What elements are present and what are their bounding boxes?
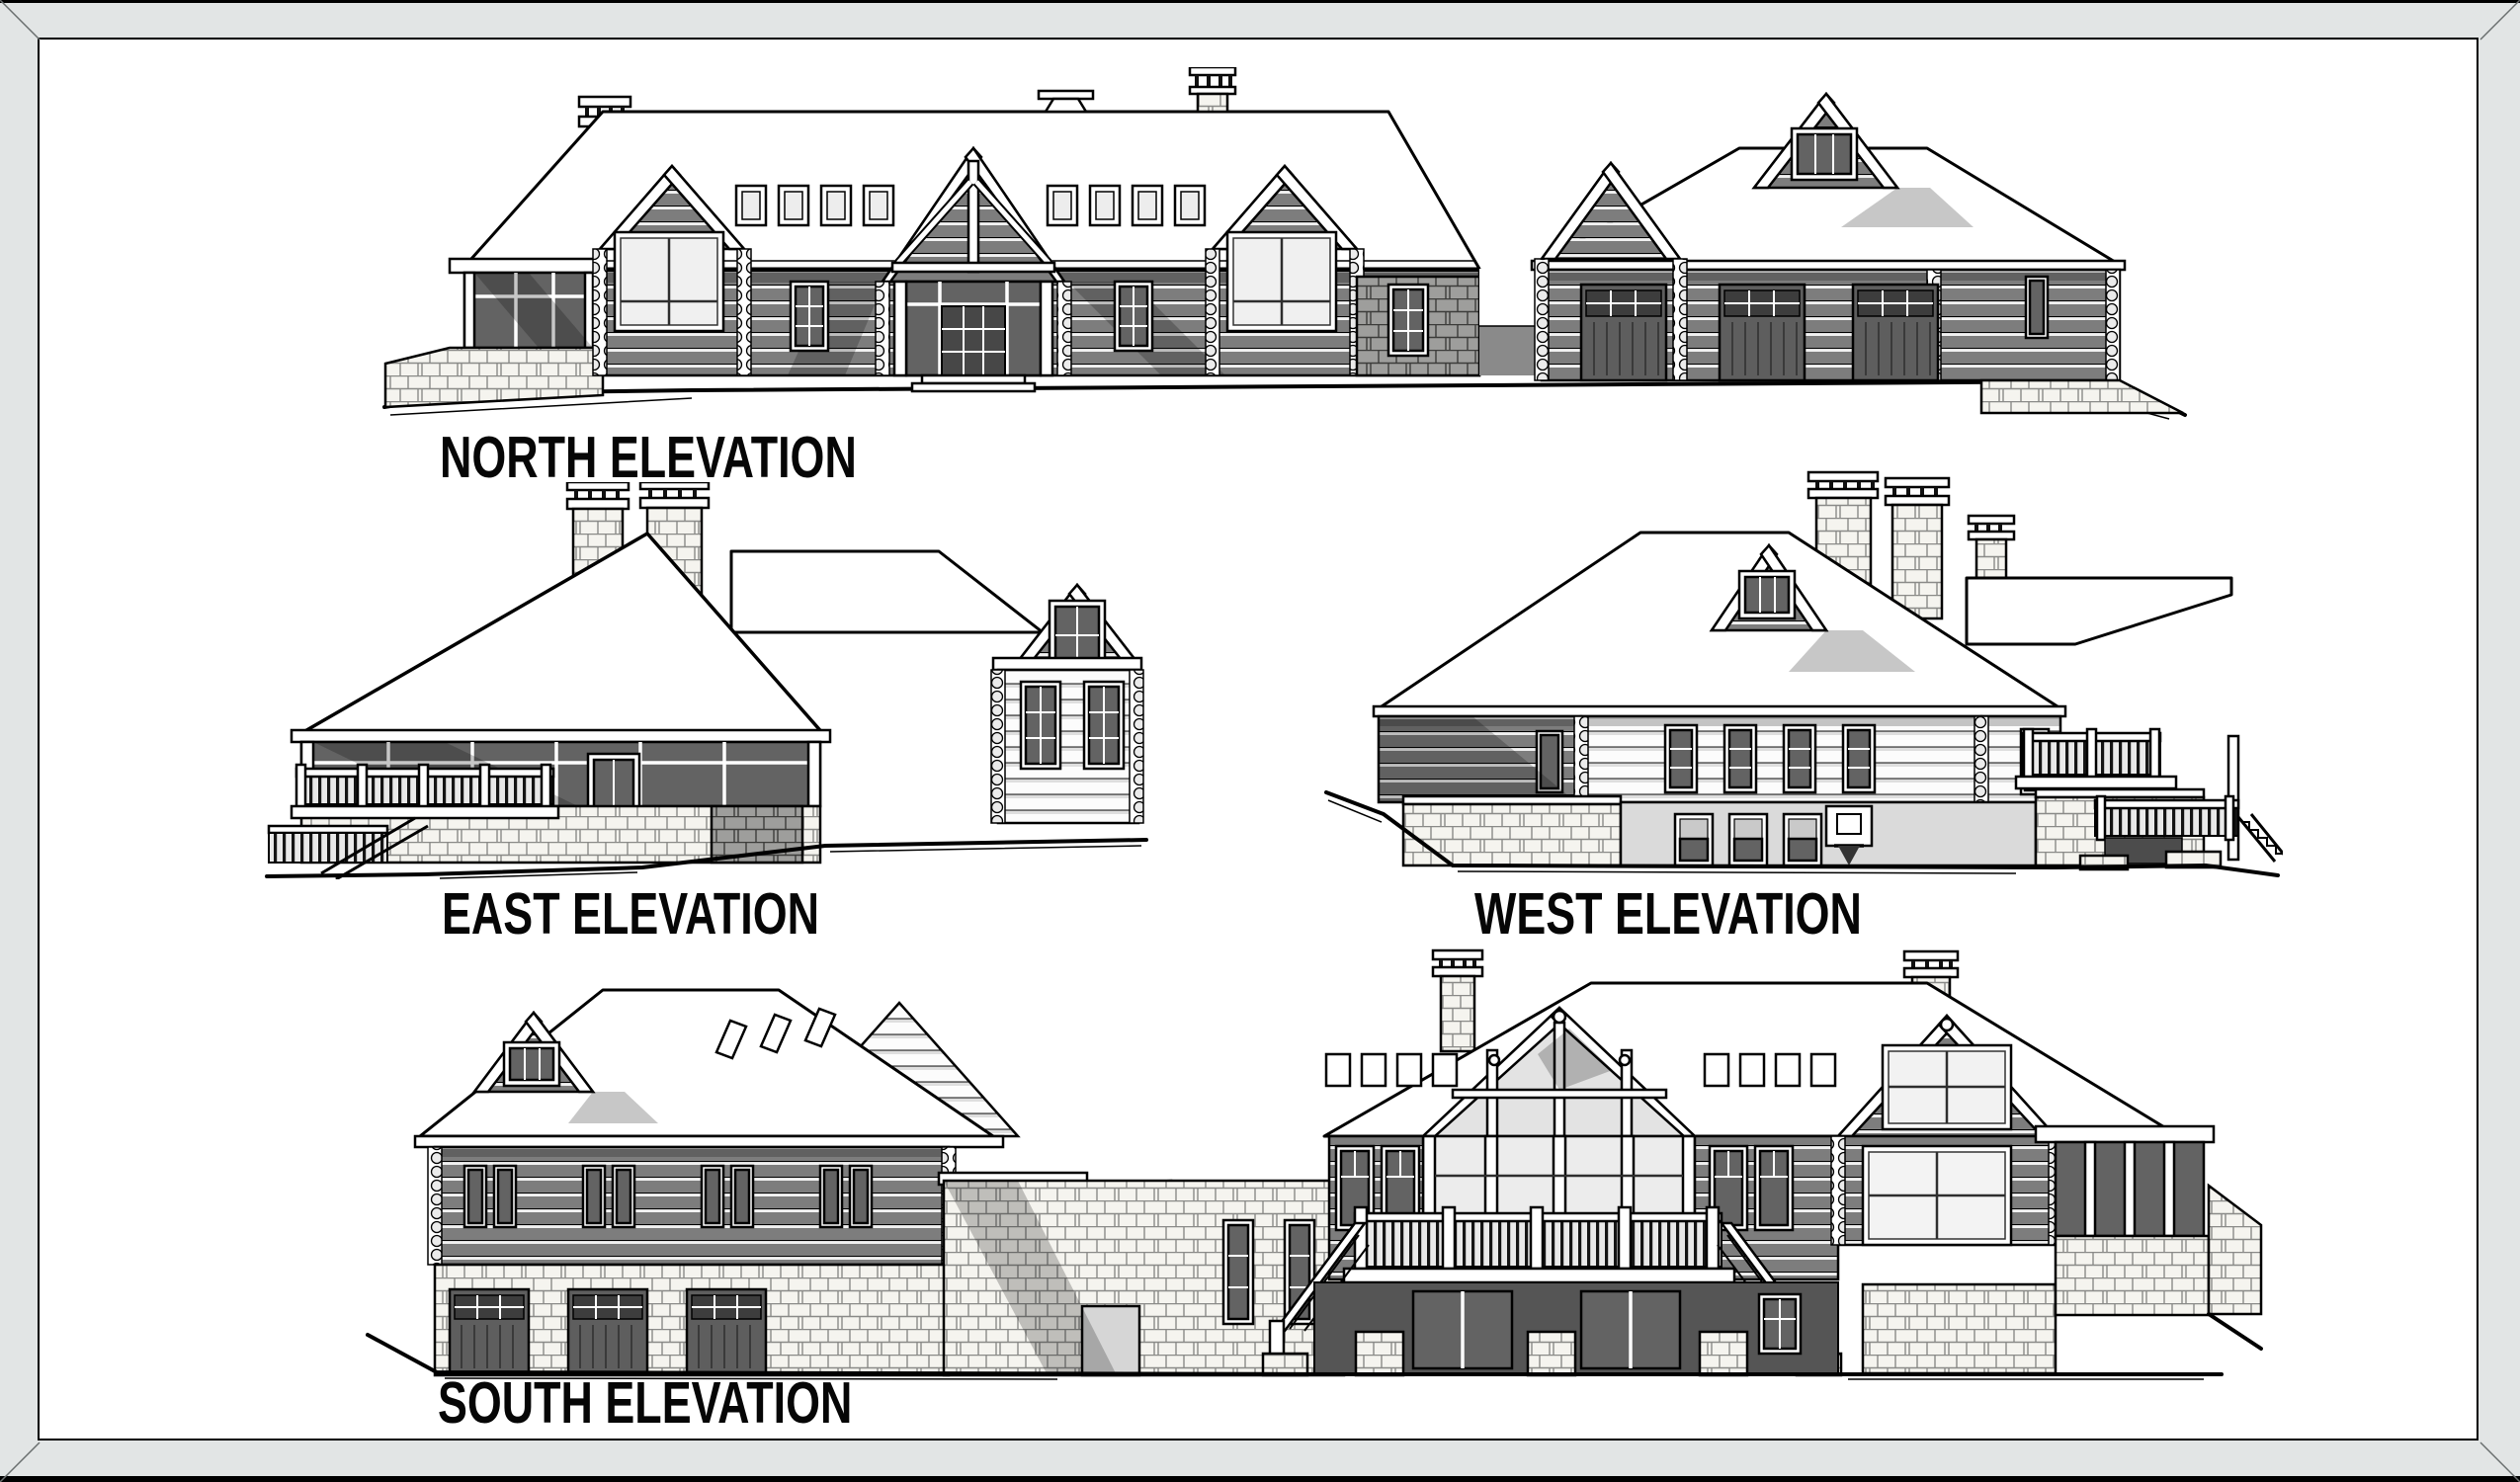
garage-door [687,1289,766,1373]
stone-base [2056,1236,2209,1315]
north-elevation-drawing [380,67,2189,435]
porch-stone-base [385,348,603,407]
lower-windows [1675,814,1821,865]
garage-door [1581,285,1666,380]
west-log-walls [1379,716,2060,802]
south-elevation-drawing [366,944,2263,1381]
south-walkout-level [1314,1282,1838,1375]
north-porch [385,259,603,407]
garage-doors [450,1289,766,1373]
south-elevation-label: SOUTH ELEVATION [438,1369,852,1437]
north-breezeway [1479,269,1542,375]
prow-main-level-glazing [1423,1136,1695,1220]
south-garage-wing [415,990,1018,1375]
west-elevation-label: WEST ELEVATION [1474,880,1862,947]
north-ridge-vent [1039,91,1093,112]
west-elevation-drawing [1324,466,2283,881]
garage-door [1720,285,1805,380]
west-rear-wing [1967,516,2231,644]
east-elevation-label: EAST ELEVATION [442,880,819,947]
stone-retaining-wall [1403,804,1621,865]
entry-step [912,383,1035,391]
backboard [1826,806,1872,846]
east-elevation-drawing [262,482,1151,879]
frame-bottom-edge [0,1476,2520,1482]
frame-top-edge [0,0,2520,3]
deck-fascia [1344,1269,1734,1282]
clerestory-group-left [1326,1054,1457,1086]
north-garage-wing [1532,94,2183,413]
lower-rail [269,826,387,833]
garage-door [1853,285,1938,380]
garage-doors [1581,285,1938,380]
garage-door [568,1289,647,1373]
north-elevation-label: NORTH ELEVATION [440,424,857,491]
north-ridge-chimney [1190,67,1235,112]
deck-fascia [292,806,558,818]
lower-deck-rail [2095,800,2238,808]
entry-glazing [894,282,1052,375]
garage-door [450,1289,529,1373]
north-grade [384,381,2185,419]
south-porch-wing [2036,1126,2261,1315]
stone-base [1863,1284,2056,1373]
drawing-sheet: NORTH ELEVATION EAST ELEVATION WEST ELEV… [0,0,2520,1482]
north-stone-wall-section [1357,277,1479,375]
truss-king-post [968,161,978,272]
truss-chord [892,263,1054,272]
south-main-house [1263,983,2261,1375]
entry-door [942,306,1005,375]
rear-roof [731,551,1043,632]
garage-stone-base [1981,380,2183,413]
stone-retaining [2209,1186,2261,1314]
